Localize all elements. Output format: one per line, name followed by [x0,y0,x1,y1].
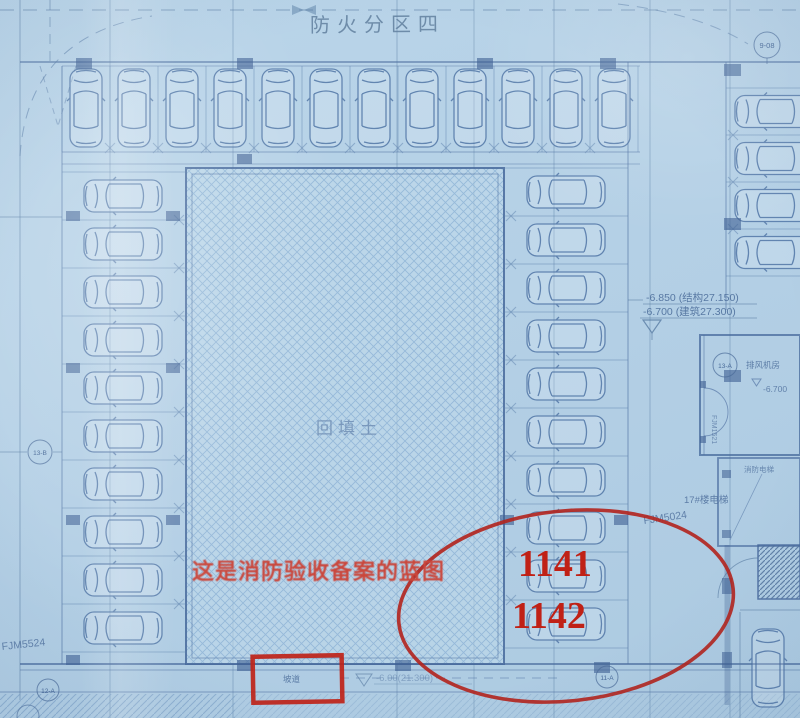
car-icon [735,187,800,225]
car-icon [84,465,162,503]
car-icon [163,69,201,147]
ramp-label: 坡道 [283,674,301,684]
car-icon [527,221,605,259]
blueprint-drawing: 回填土 FJM1521 排风机房 -6.700 消防电梯 17#楼电梯 FJM5… [0,0,800,718]
car-icon [499,69,537,147]
car-icon [595,69,633,147]
grid-bubble-left: 13-B [33,450,47,457]
car-icon [307,69,345,147]
car-icon [735,93,800,131]
car-icon [403,69,441,147]
grid-bubble-right: 13-A [718,363,732,370]
elevation-notes: -6.850 (结构27.150) -6.700 (建筑27.300) [628,291,757,340]
grid-bubble-bl: 12-A [41,688,55,695]
door-label-fjm1521: FJM1521 [710,415,717,444]
car-icon [84,513,162,551]
car-icon [84,225,162,263]
car-icon [749,629,787,707]
parking-number-1141: 1141 [518,543,592,585]
car-icon [735,234,800,272]
fan-room-elevation: -6.700 [763,384,787,394]
car-icon [259,69,297,147]
car-icon [527,413,605,451]
red-note-text: 这是消防验收备案的蓝图 [192,559,445,584]
car-icon [84,177,162,215]
car-icon [84,561,162,599]
ramp-elevation: -6.00(21.300) [376,673,433,684]
parking-number-1142: 1142 [512,595,586,637]
fire-zone-title: 防火分区四 [310,13,445,37]
car-icon [735,140,800,178]
car-icon [355,69,393,147]
elevation-marker-icon [643,320,661,333]
elevation-line-2: -6.700 (建筑27.300) [643,305,736,318]
grid-bubble-tr: 9-08 [759,41,774,50]
valve-symbol-icon [292,5,316,15]
car-icon [84,609,162,647]
car-icon [84,273,162,311]
car-icon [84,369,162,407]
backfill-label: 回填土 [316,419,382,438]
car-icon [547,69,585,147]
car-icon [527,365,605,403]
car-icon [527,317,605,355]
car-icon [211,69,249,147]
car-icon [115,69,153,147]
floor-edge-hatch-dense [0,694,235,718]
car-icon [84,321,162,359]
car-icon [84,417,162,455]
backfill-area: 回填土 [186,168,504,664]
grid-bubble-bm: 11-A [600,675,614,682]
building-label: 17#楼电梯 [684,494,729,506]
blueprint-photo: 回填土 FJM1521 排风机房 -6.700 消防电梯 17#楼电梯 FJM5… [0,0,800,718]
car-icon [527,173,605,211]
door-label-fjm5524: FJM5524 [1,636,46,653]
fan-room-label: 排风机房 [746,360,780,370]
car-icon [527,461,605,499]
elevator-room-label: 消防电梯 [744,464,774,474]
car-icon [527,269,605,307]
elevation-line-1: -6.850 (结构27.150) [646,291,739,304]
car-icon [67,69,105,147]
car-icon [451,69,489,147]
ramp-elevation-marker-icon [356,674,372,686]
